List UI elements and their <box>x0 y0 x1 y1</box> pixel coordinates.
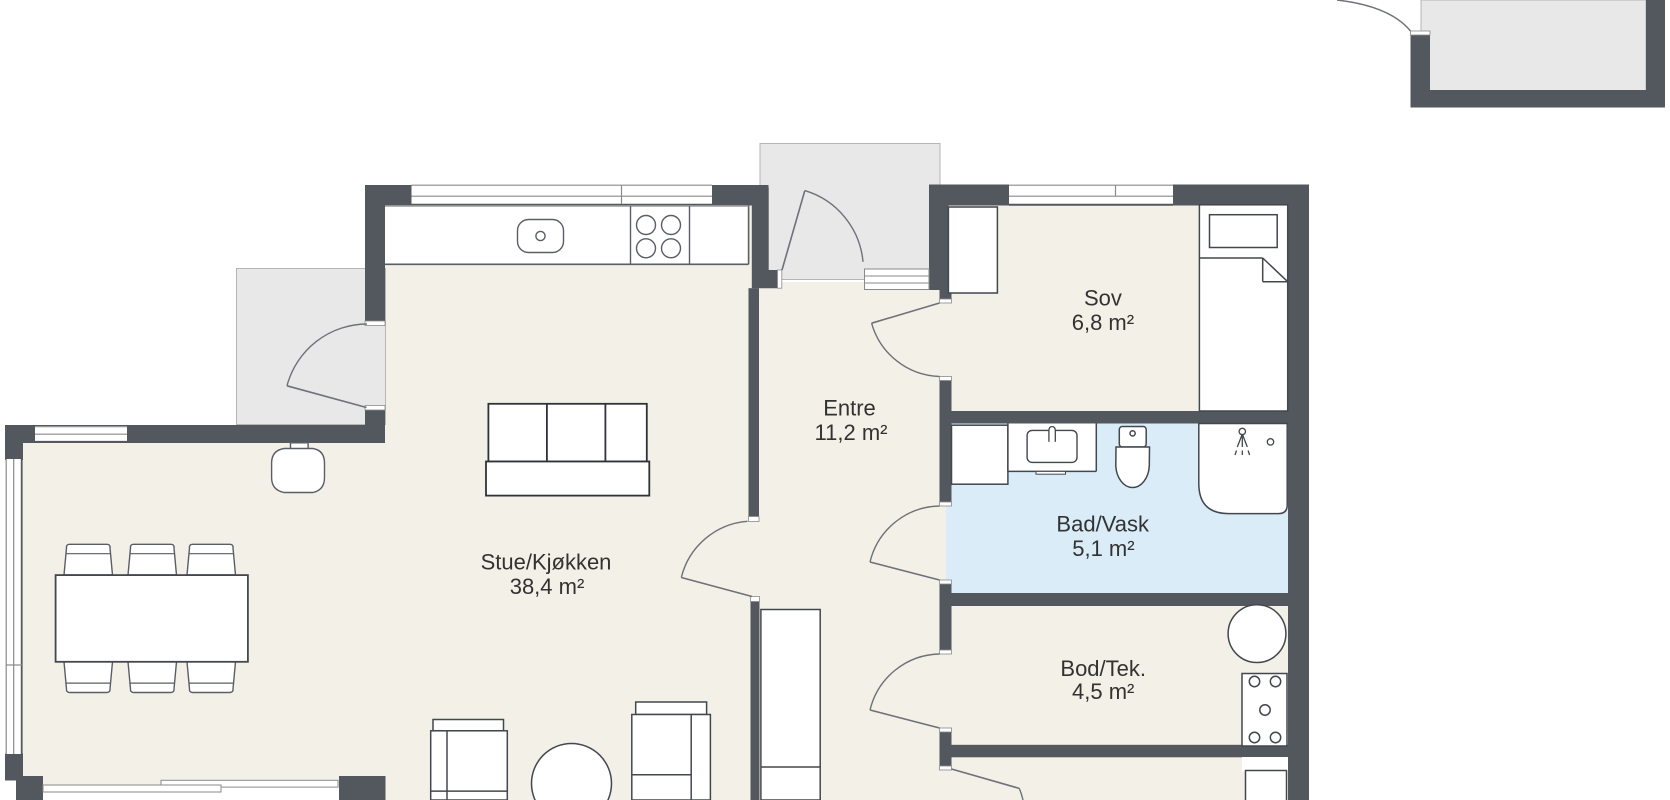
svg-text:5,1 m²: 5,1 m² <box>1072 536 1134 561</box>
svg-text:11,2 m²: 11,2 m² <box>815 420 888 445</box>
svg-text:Stue/Kjøkken: Stue/Kjøkken <box>481 550 612 575</box>
svg-text:4,5 m²: 4,5 m² <box>1072 679 1134 704</box>
svg-text:Sov: Sov <box>1084 286 1122 311</box>
svg-text:Bad/Vask: Bad/Vask <box>1056 512 1150 537</box>
svg-text:Entre: Entre <box>823 396 876 421</box>
svg-text:38,4 m²: 38,4 m² <box>510 574 585 599</box>
svg-text:Bod/Tek.: Bod/Tek. <box>1060 656 1146 681</box>
svg-text:6,8 m²: 6,8 m² <box>1072 310 1134 335</box>
